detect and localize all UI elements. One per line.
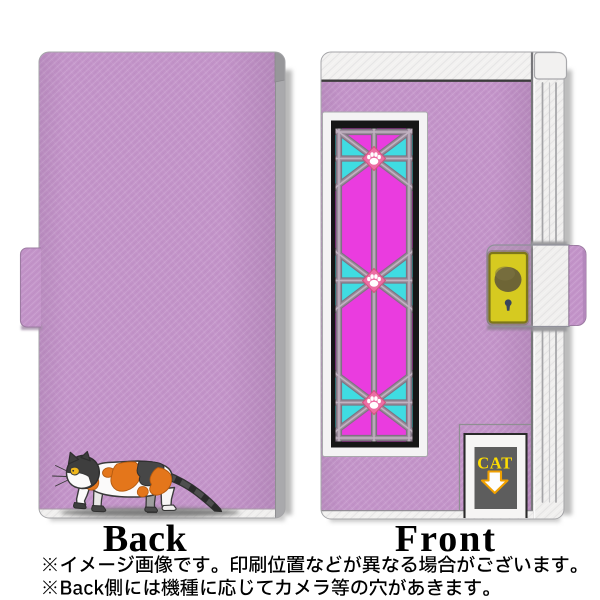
svg-text:CAT: CAT <box>477 454 512 473</box>
svg-text:Front: Front <box>395 518 497 560</box>
svg-text:Back: Back <box>103 518 188 560</box>
